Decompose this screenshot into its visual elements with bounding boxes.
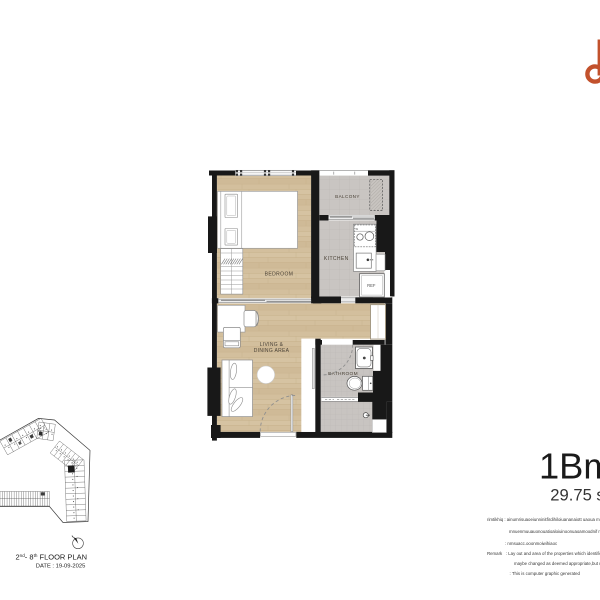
svg-text:Remark : Lay out and area of: Remark : Lay out and area of the propert…: [487, 551, 600, 556]
svg-text:maybe changed as deemed approp: maybe changed as deemed appropriate,but …: [514, 561, 600, 566]
svg-text:LIVING &: LIVING &: [260, 342, 284, 348]
svg-text:1Bm: 1Bm: [539, 445, 600, 486]
svg-text:BATHROOM: BATHROOM: [328, 371, 358, 377]
svg-text:REF: REF: [367, 283, 376, 288]
svg-text:: nmsuacc.ooonmoiwihiaoc: : nmsuacc.ooonmoiwihiaoc: [505, 541, 558, 546]
svg-text:mnuenmuuauonouatioaloiuinoonua: mnuenmuuauonouatioaloiuinoonuaoamoodnif …: [509, 529, 600, 534]
svg-text:: This is computer graphic gen: : This is computer graphic generated: [510, 571, 581, 576]
svg-text:2nd- 8th FLOOR PLAN: 2nd- 8th FLOOR PLAN: [16, 553, 88, 562]
svg-text:KITCHEN: KITCHEN: [324, 256, 349, 262]
svg-text:BEDROOM: BEDROOM: [265, 272, 294, 278]
svg-text:rimtikhiq : ainumrisuaoeiunnin: rimtikhiq : ainumrisuaoeiunninitfirdihil…: [487, 517, 600, 522]
svg-text:BALCONY: BALCONY: [335, 194, 360, 199]
svg-text:DINING AREA: DINING AREA: [254, 348, 290, 354]
svg-text:29.75 sq.m.: 29.75 sq.m.: [550, 486, 600, 505]
svg-text:DATE : 19-09-2025: DATE : 19-09-2025: [36, 564, 86, 570]
